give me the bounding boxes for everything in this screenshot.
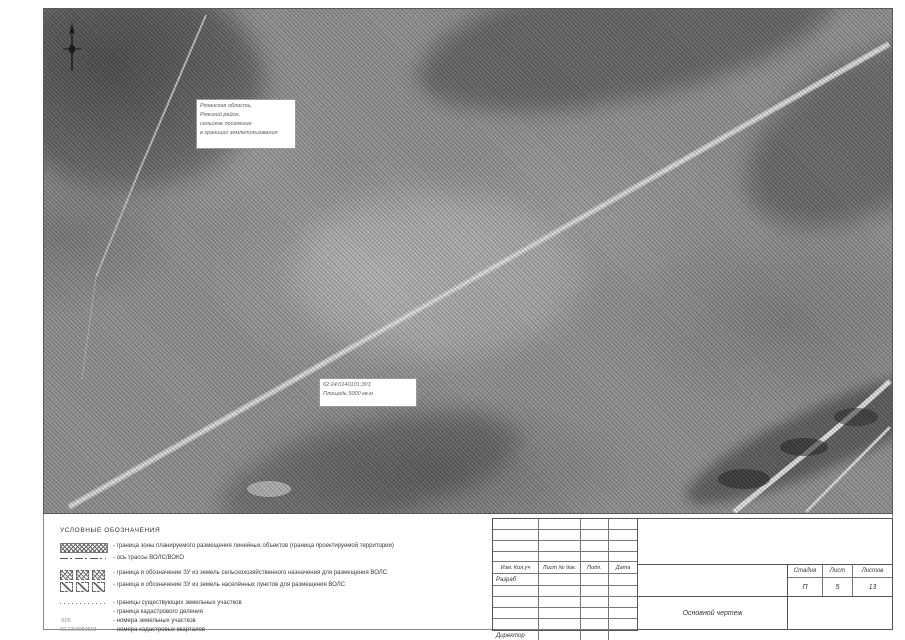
col-list-ndok: Лист № док. bbox=[539, 562, 581, 573]
axis-line-icon bbox=[60, 555, 108, 559]
sheets-label: Листов bbox=[853, 565, 892, 578]
legend-item-settlement: - граница и обозначение ЗУ из земель нас… bbox=[60, 582, 490, 592]
location-line: Рязанская область, bbox=[200, 102, 292, 111]
titleblock-empty-cell bbox=[637, 564, 788, 597]
titleblock-designation-cell bbox=[637, 518, 893, 565]
location-line: Ряжский район, bbox=[200, 111, 292, 120]
main-road bbox=[69, 44, 889, 507]
legend-item-agri: - граница и обозначение ЗУ из земель сел… bbox=[60, 570, 490, 580]
legend-item-axis: - ось трассы ВОЛС/ВОКО bbox=[60, 555, 490, 562]
drawing-sheet: Рязанская область, Ряжский район, сельск… bbox=[0, 0, 905, 640]
legend-item-existing-parcels: - границы существующих земельных участко… bbox=[60, 600, 490, 607]
stage-value: П bbox=[788, 578, 823, 597]
dotted-line-icon bbox=[60, 600, 108, 604]
razrab-label: Разраб bbox=[493, 574, 539, 585]
col-izm-koluch: Изм. Кол.уч bbox=[493, 562, 539, 573]
stage-label: Стадия bbox=[788, 565, 823, 578]
location-line: сельское поселение bbox=[200, 120, 292, 129]
legend-title: УСЛОВНЫЕ ОБОЗНАЧЕНИЯ bbox=[60, 527, 490, 534]
sheets-value: 13 bbox=[853, 578, 892, 597]
col-data: Дата bbox=[609, 562, 637, 573]
legend-item-quarter-numbers: 50:23:0050501 - номера кадастровых кварт… bbox=[60, 627, 490, 634]
titleblock-razrab-row: Разраб bbox=[493, 574, 637, 586]
parcel-number-sample: :505 bbox=[60, 618, 108, 625]
drawing-title-cell: Основной чертеж bbox=[637, 596, 788, 630]
col-podp: Подп. bbox=[581, 562, 609, 573]
sheet-value: 5 bbox=[823, 578, 853, 597]
quarter-number-sample: 50:23:0050501 bbox=[60, 627, 108, 634]
sheet-label: Лист bbox=[823, 565, 853, 578]
zone-hatch-swatch bbox=[60, 543, 108, 553]
director-label: Директор bbox=[493, 630, 539, 640]
legend-item-parcel-numbers: :505 - номера земельных участков bbox=[60, 618, 490, 625]
organization-cell bbox=[787, 596, 893, 630]
field-track bbox=[96, 15, 206, 277]
titleblock-signature-table: Изм. Кол.уч Лист № док. Подп. Дата Разра… bbox=[492, 518, 638, 631]
location-line: в границах землепользования bbox=[200, 129, 292, 138]
titleblock-header-row: Изм. Кол.уч Лист № док. Подп. Дата bbox=[493, 562, 637, 574]
location-annotation: Рязанская область, Ряжский район, сельск… bbox=[196, 99, 296, 149]
stage-value-row: П 5 13 bbox=[788, 578, 892, 597]
legend-item-zone: - граница зоны планируемого размещения л… bbox=[60, 543, 490, 553]
roads-overlay bbox=[44, 9, 893, 514]
agri-parcel-boxes-icon bbox=[60, 570, 108, 580]
legend: УСЛОВНЫЕ ОБОЗНАЧЕНИЯ - граница зоны план… bbox=[60, 527, 490, 634]
titleblock-director-row: Директор bbox=[493, 630, 637, 640]
stage-sheet-table: Стадия Лист Листов П 5 13 bbox=[787, 564, 893, 597]
cadastral-number: 62:24:0140101:ЗУ1 bbox=[323, 381, 413, 390]
north-arrow-icon bbox=[62, 23, 82, 75]
stage-header-row: Стадия Лист Листов bbox=[788, 565, 892, 578]
parcel-area: Площадь 5000 кв.м bbox=[323, 390, 413, 399]
settlement-parcel-boxes-icon bbox=[60, 582, 108, 592]
parcel-annotation: 62:24:0140101:ЗУ1 Площадь 5000 кв.м bbox=[319, 378, 417, 407]
drawing-title: Основной чертеж bbox=[683, 610, 743, 617]
legend-item-cadastral-division: - граница кадастрового деления bbox=[60, 609, 490, 616]
aerial-map: Рязанская область, Ряжский район, сельск… bbox=[43, 8, 893, 514]
